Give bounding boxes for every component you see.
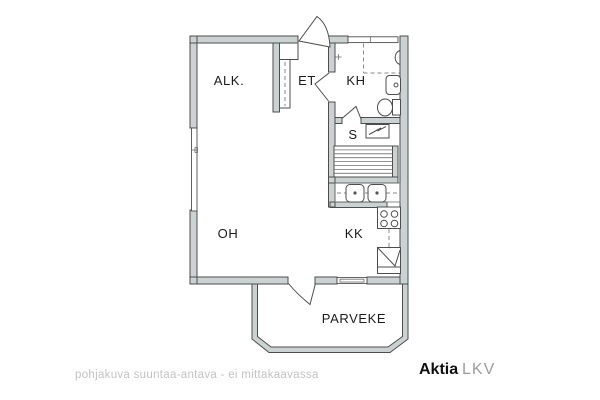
brand-name: Aktia: [419, 361, 458, 378]
window-balcony-icon: [337, 278, 367, 284]
room-label-alk: ALK.: [214, 73, 245, 88]
bathroom-door-icon: [315, 73, 329, 101]
floor-plan-page: ALK. ET KH S OH KK PARVEKE pohjakuva suu…: [0, 0, 600, 400]
refrigerator-icon: [378, 248, 401, 274]
wardrobe-icon: [280, 43, 299, 108]
window-top-icon: [348, 37, 398, 43]
shower-mixer-icon: [395, 51, 400, 65]
sauna-stove-icon: [366, 125, 389, 139]
brand-suffix: LKV: [462, 361, 495, 378]
entrance-door-icon: [299, 17, 330, 48]
room-label-parveke: PARVEKE: [322, 311, 386, 326]
window-left-icon: [192, 128, 198, 211]
room-label-oh: OH: [218, 226, 239, 241]
floor-plan-drawing: ALK. ET KH S OH KK PARVEKE pohjakuva suu…: [0, 0, 600, 400]
kitchen-sink-icon: [335, 183, 400, 202]
room-label-kk: KK: [345, 226, 364, 241]
disclaimer-text: pohjakuva suuntaa-antava - ei mittakaava…: [75, 369, 319, 381]
sauna-benches-icon: [334, 146, 393, 177]
room-label-s: S: [348, 127, 357, 142]
washbasin-icon: [386, 76, 401, 95]
plus-mark-icon: [336, 54, 342, 60]
stove-icon: [378, 207, 401, 229]
sauna-door-icon: [342, 107, 361, 120]
shower-area-icon: [364, 44, 400, 74]
balcony-door-icon: [289, 284, 316, 305]
toilet-icon: [378, 99, 401, 116]
room-label-kh: KH: [346, 73, 365, 88]
room-label-et: ET: [298, 73, 316, 88]
